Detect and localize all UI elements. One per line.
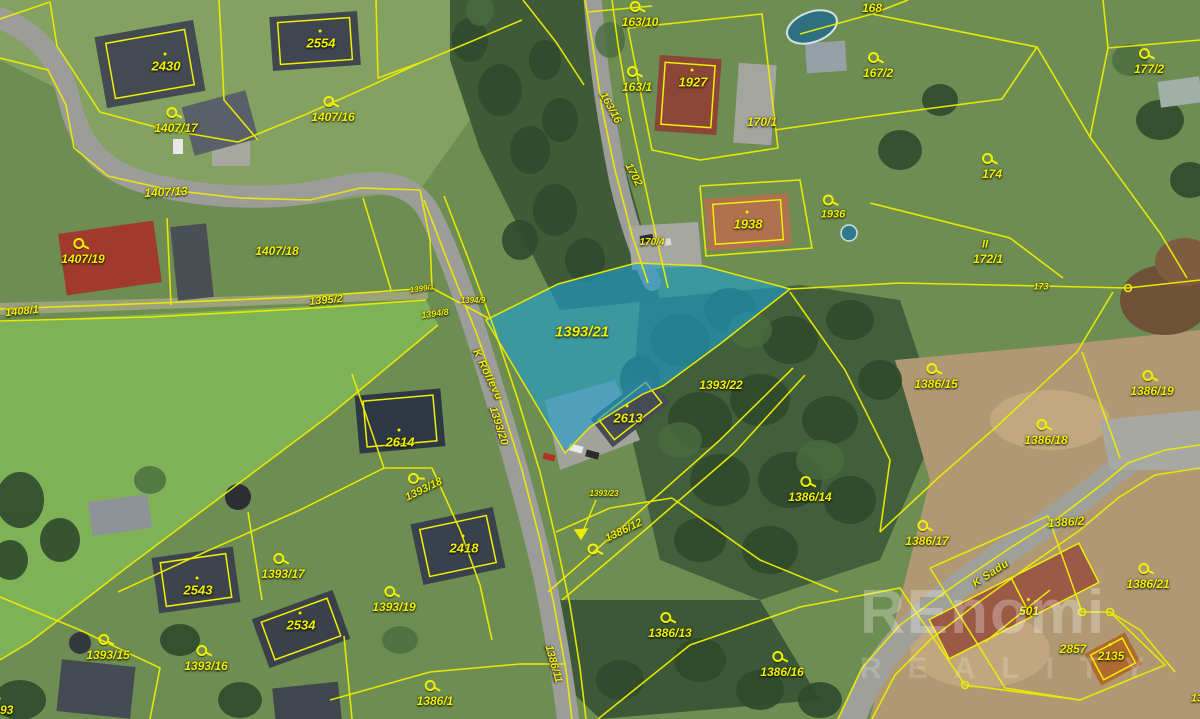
parcel-label: 1386/11 [542,644,563,684]
parcel-label: 1399/1 [409,283,434,294]
building-point-icon [398,429,401,432]
parcel-label: 1394/8 [421,308,450,321]
building-number-label: 2593 [0,704,13,716]
parcel-label: 1393/19 [372,601,415,613]
parcel-marker-icon [800,476,811,487]
parcel-label: 1407/17 [154,122,197,134]
parcel-label: 1408/1 [5,305,40,319]
parcel-label: 1393/20 [487,405,510,446]
parcel-label: 1395/2 [309,294,343,308]
parcel-label: 1393/22 [699,379,742,391]
parcel-label: 1393/18 [404,476,445,503]
parcel-marker [592,549,593,550]
parcel-label: 174 [982,168,1002,180]
parcel-marker-icon [384,586,395,597]
building-point-icon [691,69,694,72]
building-point-icon [319,30,322,33]
parcel-label: 163/16 [597,91,623,126]
parcel-label: 1702 [622,162,643,189]
parcel-label: 1386/17 [905,535,948,547]
building-point-icon [746,211,749,214]
building-number-label: 501 [1019,605,1039,617]
parcel-label: 1393/15 [86,649,129,661]
building-number-label: 1927 [679,76,708,89]
parcel-label: 1386/13 [648,627,691,639]
building-number-label: 2430 [152,60,181,73]
parcel-label: 1407/18 [255,245,298,257]
parcel-label: 163/10 [622,16,659,28]
building-point-icon [196,577,199,580]
parcel-marker-icon [772,651,783,662]
parcel-label: 1386/14 [788,491,831,503]
parcel-labels-layer: 243025541407/171407/161407/131407/191407… [0,0,1200,719]
parcel-label: 177/2 [1134,63,1164,75]
map-canvas[interactable]: 243025541407/171407/161407/131407/191407… [0,0,1200,719]
parcel-label: 1386/18 [1024,434,1067,446]
building-number-label: 1938 [734,218,763,231]
parcel-marker-icon [196,645,207,656]
parcel-marker-icon [406,471,421,486]
parcel-marker-icon [1138,563,1149,574]
parcel-label: 1407/13 [144,185,188,199]
parcel-label: 168 [862,2,882,14]
parcel-marker-icon [660,612,671,623]
parcel-marker-icon [166,107,177,118]
parcel-marker-icon [982,153,993,164]
parcel-marker-icon [98,634,109,645]
parcel-label: 1386/1 [417,695,454,707]
parcel-label: 2857 [1060,643,1087,655]
parcel-label: 170/4 [639,238,664,248]
building-point-icon [164,53,167,56]
parcel-marker-icon [823,195,834,206]
building-point-icon [626,405,629,408]
parcel-label: 1407/19 [61,253,104,265]
parcel-label: 1386/15 [914,378,957,390]
building-point-icon [1109,643,1112,646]
parcel-marker-icon [1139,48,1150,59]
parcel-marker-icon [926,363,937,374]
parcel-label: 1386/12 [604,517,645,544]
parcel-marker-icon [73,238,84,249]
parcel-label: 1393/21 [555,325,609,340]
building-number-label: 2534 [287,619,316,632]
parcel-marker-icon [627,66,638,77]
parcel-label: 1386/19 [1130,385,1173,397]
parcel-label: 1393/17 [261,568,304,580]
building-point-icon [299,612,302,615]
parcel-marker-icon [868,52,879,63]
street-name-label: K Sadu [971,558,1011,590]
parcel-label: 1407/16 [311,111,354,123]
parcel-label: 13 [1191,694,1200,705]
street-name-label: K Rollevu [470,348,504,402]
building-number-label: 2614 [386,436,415,449]
parcel-label: 1386/21 [1126,578,1169,590]
building-number-label: 2543 [184,584,213,597]
parcel-marker-icon [323,96,334,107]
parcel-marker-icon [1036,419,1047,430]
parcel-marker-icon [425,680,436,691]
building-number-label: 2135 [1098,650,1125,662]
parcel-label: 1386/16 [760,666,803,678]
parcel-label: 1394/9 [461,297,485,305]
land-class-symbol: II [982,240,988,251]
parcel-marker-icon [273,553,284,564]
parcel-label: 167/2 [863,67,893,79]
building-point-icon [1027,598,1030,601]
parcel-marker-icon [917,520,928,531]
parcel-label: 163/1 [622,81,652,93]
building-number-label: 2554 [307,37,336,50]
parcel-label: 1386/2 [1047,515,1084,530]
parcel-label: 1393/23 [590,490,619,498]
parcel-label: 173 [1033,283,1048,292]
parcel-label: 1936 [821,210,845,221]
parcel-label: 170/1 [747,116,777,128]
building-number-label: 2418 [450,542,479,555]
parcel-marker-icon [630,1,641,12]
parcel-label: 172/1 [973,253,1003,265]
parcel-label: 1393/16 [184,660,227,672]
parcel-marker-icon [587,544,598,555]
parcel-marker-icon [1142,370,1153,381]
building-point-icon [0,697,1,700]
building-point-icon [462,535,465,538]
building-number-label: 2613 [614,412,643,425]
